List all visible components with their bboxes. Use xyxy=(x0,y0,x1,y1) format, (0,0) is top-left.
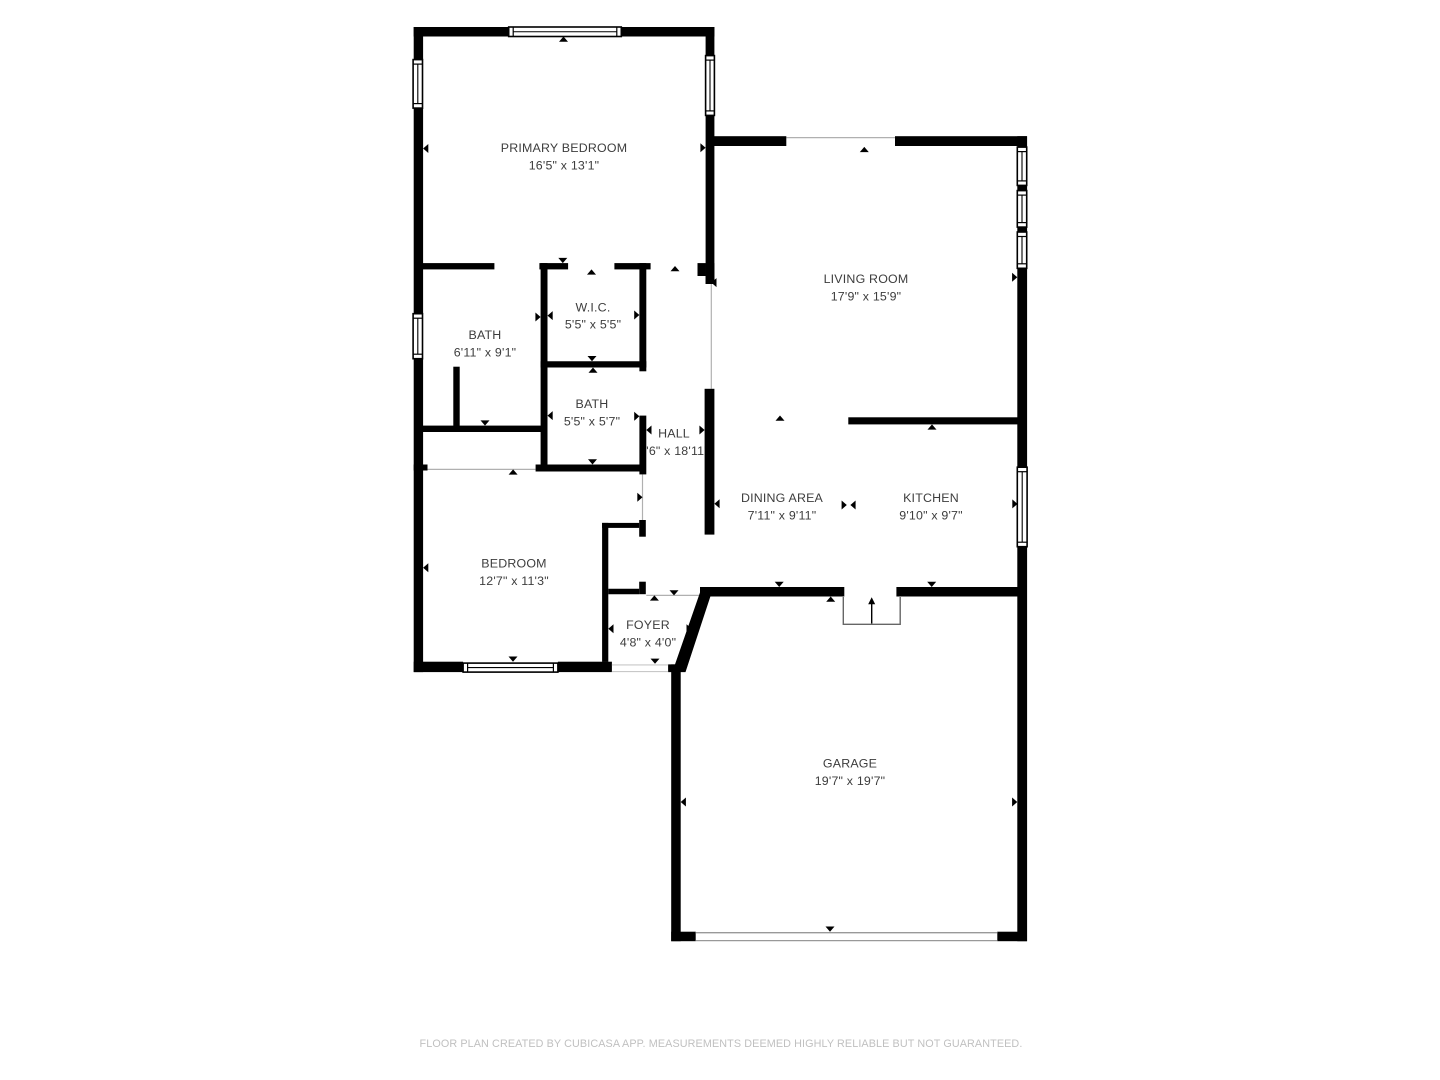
svg-text:PRIMARY BEDROOM: PRIMARY BEDROOM xyxy=(501,141,627,155)
svg-text:17'9" x 15'9": 17'9" x 15'9" xyxy=(831,289,902,303)
svg-text:BATH: BATH xyxy=(576,397,609,411)
svg-text:4'8" x 4'0": 4'8" x 4'0" xyxy=(620,635,676,649)
svg-text:FLOOR PLAN CREATED BY CUBICASA: FLOOR PLAN CREATED BY CUBICASA APP. MEAS… xyxy=(420,1038,1023,1050)
svg-text:DINING AREA: DINING AREA xyxy=(741,491,824,505)
svg-text:5'5" x 5'5": 5'5" x 5'5" xyxy=(565,318,621,332)
svg-text:7'11" x 9'11": 7'11" x 9'11" xyxy=(748,508,817,522)
svg-text:12'7" x 11'3": 12'7" x 11'3" xyxy=(479,574,549,588)
svg-text:19'7" x 19'7": 19'7" x 19'7" xyxy=(815,774,886,788)
svg-text:16'5" x 13'1": 16'5" x 13'1" xyxy=(529,158,600,172)
svg-text:BATH: BATH xyxy=(469,328,502,342)
svg-text:KITCHEN: KITCHEN xyxy=(903,491,959,505)
svg-text:3'6" x 18'11": 3'6" x 18'11" xyxy=(639,444,709,458)
svg-text:FOYER: FOYER xyxy=(626,618,670,632)
svg-text:LIVING ROOM: LIVING ROOM xyxy=(824,272,909,286)
svg-text:6'11" x 9'1": 6'11" x 9'1" xyxy=(454,345,517,359)
svg-text:5'5" x 5'7": 5'5" x 5'7" xyxy=(564,414,620,428)
svg-text:BEDROOM: BEDROOM xyxy=(481,557,546,571)
svg-text:W.I.C.: W.I.C. xyxy=(576,300,611,314)
svg-text:HALL: HALL xyxy=(658,427,690,441)
svg-text:9'10" x 9'7": 9'10" x 9'7" xyxy=(899,508,962,522)
svg-text:GARAGE: GARAGE xyxy=(823,757,877,771)
